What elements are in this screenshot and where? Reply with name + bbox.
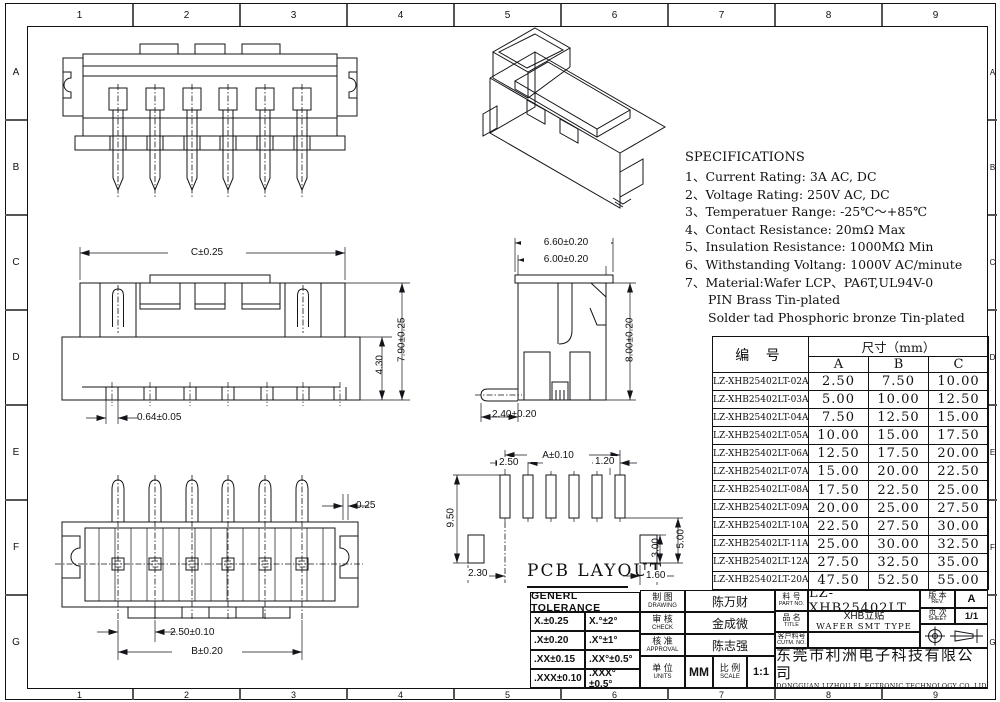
dim-b: 10.00 [869,391,929,409]
tolerance-linear: .X±0.20 [530,631,585,650]
zone-col-label: 1 [27,689,134,700]
title-block: GENERL TOLERANCE X.±0.25 X.°±2° .X±0.20 … [530,590,988,688]
pcb-pads [468,471,657,563]
sheet-label: 页 次 SHEET [920,608,955,624]
dim-side-tail: 2.40±0.20 [492,409,536,421]
dim-pcb-span: A±0.10 [527,450,589,462]
dim-pcb-pad-height: 3.00 [650,533,662,563]
dim-pcb-pad-width: 1.20 [593,456,616,468]
dim-c: 15.00 [929,409,989,427]
dim-a: 17.50 [809,481,869,499]
spec-item: 7、Material:Wafer LCP、PA6T,UL94V-0 [685,274,985,292]
part-number: LZ-XHB25402LT-10A [713,517,809,535]
dim-a: 25.00 [809,535,869,553]
zone-col-label: 8 [776,689,883,700]
tolerance-linear: .XX±0.15 [530,650,585,669]
dim-b: 20.00 [869,463,929,481]
zone-band-right: A B C D E F G [988,26,997,689]
zone-row-label: B [988,121,997,216]
dim-b: 52.50 [869,571,929,589]
zone-col-label: 2 [134,4,241,26]
tolerance-linear: X.±0.25 [530,612,585,631]
zone-col-label: 4 [348,689,455,700]
dim-front-step: 4.30 [374,350,386,380]
top-view-pins [109,84,311,198]
customer-no-label-en: CUTM. NO. [777,641,806,647]
zone-col-label: 1 [27,4,134,26]
units-value: MM [685,656,713,688]
bottom-view-dim-lines [97,494,369,660]
dim-b: 12.50 [869,409,929,427]
dim-b: 7.50 [869,373,929,391]
size-table-part-header: 编 号 [713,337,809,373]
dim-a: 20.00 [809,499,869,517]
dim-side-inner: 6.00±0.20 [524,254,608,266]
table-row: LZ-XHB25402LT-02A2.507.5010.00 [713,373,989,391]
zone-col-label: 5 [455,689,562,700]
size-table: 编 号 尺寸（mm） A B C LZ-XHB25402LT-02A2.507.… [712,336,989,590]
table-row: LZ-XHB25402LT-08A17.5022.5025.00 [713,481,989,499]
approval-label-en: APPROVAL [647,647,679,653]
dim-c: 22.50 [929,463,989,481]
dim-side-outer: 6.60±0.20 [521,237,611,249]
dim-b: 30.00 [869,535,929,553]
bottom-view-pins [112,475,308,620]
front-view-body [62,275,360,406]
specifications-title: SPECIFICATIONS [685,150,985,165]
drawing-sheet: 1 2 3 4 5 6 7 8 9 1 2 3 4 5 6 7 8 9 A B … [0,0,1000,702]
size-table-dim-header: 尺寸（mm） [809,337,989,357]
size-table-col: B [869,357,929,373]
dim-b: 32.50 [869,553,929,571]
size-table-col: A [809,357,869,373]
spec-item: 6、Withstanding Voltang: 1000V AC/minute [685,256,985,274]
dim-bottom-offset: 0.25 [356,500,375,512]
rev-label: 版 本 REV. [920,590,955,608]
drawing-name: 陈万财 [685,590,775,612]
spec-item: 1、Current Rating: 3A AC, DC [685,168,985,186]
dim-b: 27.50 [869,517,929,535]
tolerance-angular: .X°±1° [585,631,640,650]
dim-bottom-pitch: 2.50±0.10 [170,627,214,639]
pcb-layout-underline [527,586,628,588]
dim-c: 12.50 [929,391,989,409]
dim-a: 2.50 [809,373,869,391]
units-label-cn: 单 位 [652,664,673,673]
spec-item: 5、Insulation Resistance: 1000MΩ Min [685,238,985,256]
zone-row-label: A [5,26,27,121]
part-number: LZ-XHB25402LT-03A [713,391,809,409]
pcb-layout-caption: PCB LAYOUT [527,561,663,581]
scale-value: 1:1 [747,656,775,688]
tolerance-angular: .XXX°±0.5° [585,669,640,688]
dim-a: 27.50 [809,553,869,571]
zone-band-bottom: 1 2 3 4 5 6 7 8 9 [27,689,988,700]
zone-band-left: A B C D E F G [5,26,27,689]
dim-pcb-height-right: 5.00 [675,524,687,554]
title-value-cn: XHB立贴 [844,611,885,622]
isometric-tower [493,28,570,98]
part-number: LZ-XHB25402LT-20A [713,571,809,589]
bottom-view-body [55,522,363,618]
dim-b: 17.50 [869,445,929,463]
dim-front-pin: 0.64±0.05 [137,412,181,424]
dim-c: 20.00 [929,445,989,463]
spec-item: Solder tad Phosphoric bronze Tin-plated [685,309,985,327]
size-table-col: C [929,357,989,373]
drawing-label: 制 图 DRAWING [640,590,685,612]
dim-c: 10.00 [929,373,989,391]
part-no-value: LZ-XHB25402LT [808,590,920,611]
zone-row-label: G [988,596,997,689]
part-no-label-en: PART NO. [779,602,804,608]
approval-label-cn: 核 准 [652,637,673,646]
part-number: LZ-XHB25402LT-06A [713,445,809,463]
zone-row-label: D [988,311,997,406]
part-no-label: 料 号 PART NO. [775,590,808,611]
scale-label-cn: 比 例 [720,664,741,673]
rev-value: A [955,590,988,608]
scale-label-en: SCALE [720,674,740,680]
zone-row-label: F [5,501,27,596]
side-view-body [475,275,613,401]
drawing-label-cn: 制 图 [652,593,673,602]
table-row: LZ-XHB25402LT-03A5.0010.0012.50 [713,391,989,409]
spec-item: PIN Brass Tin-plated [685,291,985,309]
projection-symbol-cell [920,624,988,648]
dim-b: 15.00 [869,427,929,445]
dim-front-height: 7.90±0.25 [396,305,408,375]
part-number: LZ-XHB25402LT-02A [713,373,809,391]
specifications-block: SPECIFICATIONS 1、Current Rating: 3A AC, … [685,150,985,326]
dim-a: 47.50 [809,571,869,589]
dim-front-width: C±0.25 [168,247,246,259]
scale-label: 比 例 SCALE [713,656,747,688]
part-number: LZ-XHB25402LT-05A [713,427,809,445]
zone-col-label: 4 [348,4,455,26]
dim-b: 22.50 [869,481,929,499]
drawing-label-en: DRAWING [648,603,677,609]
tolerance-angular: .XX°±0.5° [585,650,640,669]
zone-row-label: F [988,501,997,596]
table-row: LZ-XHB25402LT-06A12.5017.5020.00 [713,445,989,463]
tolerance-title: GENERL TOLERANCE [530,592,640,612]
zone-col-label: 3 [241,689,348,700]
dim-c: 30.00 [929,517,989,535]
dim-a: 15.00 [809,463,869,481]
zone-col-label: 9 [883,689,988,700]
table-row: LZ-XHB25402LT-11A25.0030.0032.50 [713,535,989,553]
dim-c: 25.00 [929,481,989,499]
check-name: 金成微 [685,612,775,634]
company-name-cn: 东莞市利洲电子科技有限公司 [776,648,987,683]
dim-pcb-pitch: 2.50 [497,457,520,469]
spec-item: 3、Temperatuer Range: -25℃～+85℃ [685,203,985,221]
title-label: 品 名 TITLE [775,611,808,632]
zone-row-label: B [5,121,27,216]
title-value: XHB立贴 WAFER SMT TYPE [808,611,920,632]
dim-c: 27.50 [929,499,989,517]
units-label-en: UNITS [654,674,672,680]
dim-c: 17.50 [929,427,989,445]
table-row: LZ-XHB25402LT-12A27.5032.5035.00 [713,553,989,571]
title-value-en: WAFER SMT TYPE [816,622,912,632]
zone-row-label: D [5,311,27,406]
tolerance-angular: X.°±2° [585,612,640,631]
approval-name: 陈志强 [685,634,775,656]
dim-a: 10.00 [809,427,869,445]
table-row: LZ-XHB25402LT-20A47.5052.5055.00 [713,571,989,589]
dim-c: 32.50 [929,535,989,553]
top-view-body [63,44,357,150]
table-row: LZ-XHB25402LT-04A7.5012.5015.00 [713,409,989,427]
dim-c: 55.00 [929,571,989,589]
dim-bottom-span: B±0.20 [172,646,242,658]
dim-a: 7.50 [809,409,869,427]
dim-side-height: 8.00±0.20 [624,305,636,375]
spec-item: 4、Contact Resistance: 20mΩ Max [685,221,985,239]
table-row: LZ-XHB25402LT-07A15.0020.0022.50 [713,463,989,481]
dim-pcb-edge-right: 1.60 [644,570,667,582]
isometric-view-drawing [465,22,690,217]
zone-row-label: E [988,406,997,501]
sheet-value: 1/1 [955,608,988,624]
company-block: 东莞市利洲电子科技有限公司 DONGGUAN LIZHOU EL ECTRONI… [775,648,988,688]
check-label-cn: 审 核 [652,615,673,624]
check-label-en: CHECK [652,625,673,631]
dim-pcb-height-left: 9.50 [445,503,457,533]
title-label-en: TITLE [784,623,799,629]
part-number: LZ-XHB25402LT-07A [713,463,809,481]
dim-b: 25.00 [869,499,929,517]
dim-c: 35.00 [929,553,989,571]
front-view-drawing [58,240,408,435]
table-row: LZ-XHB25402LT-05A10.0015.0017.50 [713,427,989,445]
zone-col-label: 2 [134,689,241,700]
dim-a: 22.50 [809,517,869,535]
zone-col-label: 6 [562,689,669,700]
bottom-view-drawing [55,468,405,673]
approval-label: 核 准 APPROVAL [640,634,685,656]
zone-col-label: 8 [776,4,883,26]
dim-a: 12.50 [809,445,869,463]
part-number: LZ-XHB25402LT-04A [713,409,809,427]
company-name-en: DONGGUAN LIZHOU EL ECTRONIC TECHNOLOGY C… [776,683,986,689]
customer-no-value [808,632,920,648]
part-number: LZ-XHB25402LT-09A [713,499,809,517]
zone-row-label: C [988,216,997,311]
table-row: LZ-XHB25402LT-10A22.5027.5030.00 [713,517,989,535]
zone-row-label: A [988,26,997,121]
zone-row-label: G [5,596,27,689]
dim-a: 5.00 [809,391,869,409]
tolerance-linear: .XXX±0.10 [530,669,585,688]
part-number: LZ-XHB25402LT-11A [713,535,809,553]
third-angle-projection-icon [921,625,987,647]
table-row: LZ-XHB25402LT-09A20.0025.0027.50 [713,499,989,517]
dim-pcb-edge-left: 2.30 [466,568,489,580]
customer-no-label: 客户料号 CUTM. NO. [775,632,808,648]
rev-label-en: REV. [931,600,943,606]
part-number: LZ-XHB25402LT-12A [713,553,809,571]
zone-col-label: 9 [883,4,988,26]
zone-col-label: 3 [241,4,348,26]
part-number: LZ-XHB25402LT-08A [713,481,809,499]
units-label: 单 位 UNITS [640,656,685,688]
sheet-label-en: SHEET [928,617,946,623]
check-label: 审 核 CHECK [640,612,685,634]
zone-col-label: 7 [669,689,776,700]
zone-row-label: C [5,216,27,311]
zone-row-label: E [5,406,27,501]
spec-item: 2、Voltage Rating: 250V AC, DC [685,186,985,204]
top-view-drawing [55,40,400,235]
